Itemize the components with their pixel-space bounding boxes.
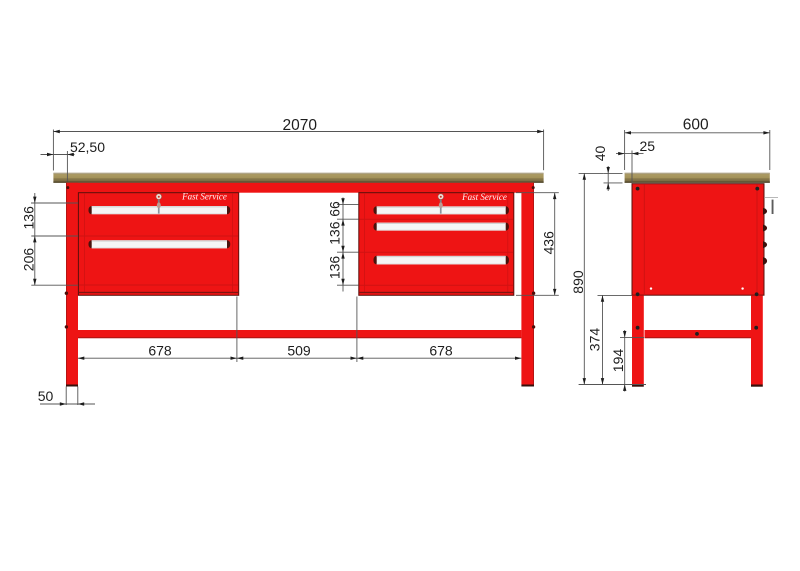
svg-text:194: 194 <box>610 349 626 373</box>
svg-text:678: 678 <box>148 342 172 358</box>
svg-text:509: 509 <box>287 342 311 358</box>
svg-text:52,50: 52,50 <box>70 139 105 155</box>
svg-text:2070: 2070 <box>282 117 317 134</box>
svg-text:Fast Service: Fast Service <box>461 192 507 202</box>
svg-text:136: 136 <box>327 221 343 245</box>
svg-text:40: 40 <box>592 146 608 162</box>
svg-text:50: 50 <box>38 388 54 404</box>
svg-text:25: 25 <box>640 138 656 154</box>
svg-text:678: 678 <box>429 342 453 358</box>
svg-text:374: 374 <box>587 328 603 352</box>
svg-text:66: 66 <box>327 201 343 217</box>
svg-text:Fast Service: Fast Service <box>181 192 227 202</box>
svg-text:206: 206 <box>21 248 37 272</box>
svg-text:136: 136 <box>21 206 37 230</box>
svg-text:890: 890 <box>570 270 586 294</box>
svg-text:600: 600 <box>683 117 709 134</box>
svg-text:136: 136 <box>327 256 343 280</box>
svg-text:436: 436 <box>540 231 556 255</box>
